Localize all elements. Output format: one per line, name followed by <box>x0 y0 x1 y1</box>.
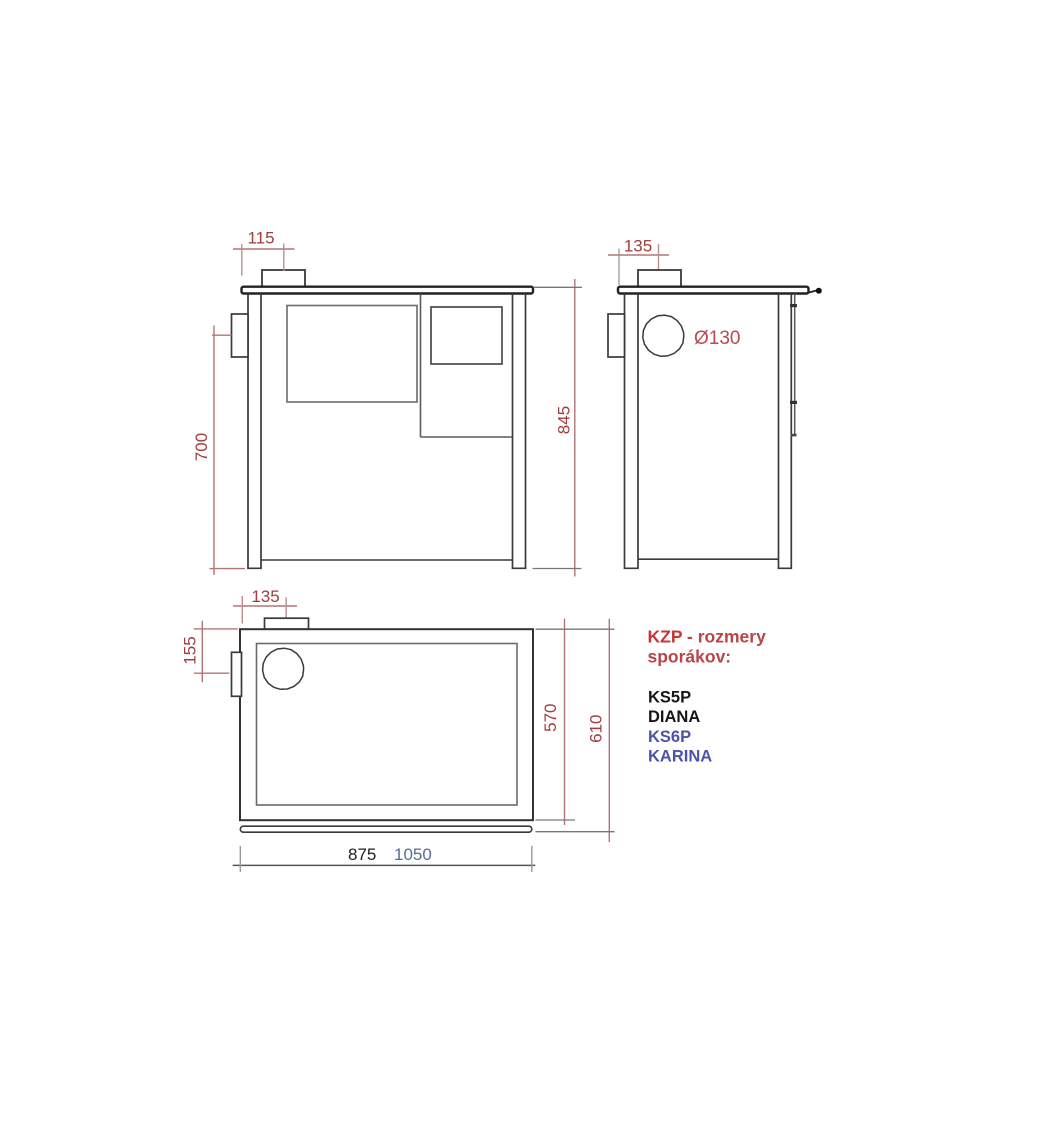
svg-text:570: 570 <box>541 704 560 732</box>
svg-text:KARINA: KARINA <box>648 748 712 766</box>
svg-text:135: 135 <box>624 237 652 256</box>
svg-text:KS5P: KS5P <box>648 689 691 707</box>
svg-text:DIANA: DIANA <box>648 708 700 726</box>
svg-text:875: 875 <box>348 845 376 864</box>
svg-text:1050: 1050 <box>394 845 432 864</box>
svg-text:845: 845 <box>555 406 574 434</box>
svg-text:KS6P: KS6P <box>648 728 691 746</box>
svg-text:135: 135 <box>251 587 279 606</box>
svg-text:610: 610 <box>586 715 605 743</box>
svg-text:Ø130: Ø130 <box>694 328 740 349</box>
svg-text:KZP - rozmery: KZP - rozmery <box>648 626 767 646</box>
svg-text:sporákov:: sporákov: <box>648 646 732 666</box>
svg-text:155: 155 <box>181 636 200 664</box>
svg-text:115: 115 <box>247 229 274 248</box>
svg-text:700: 700 <box>192 433 211 461</box>
